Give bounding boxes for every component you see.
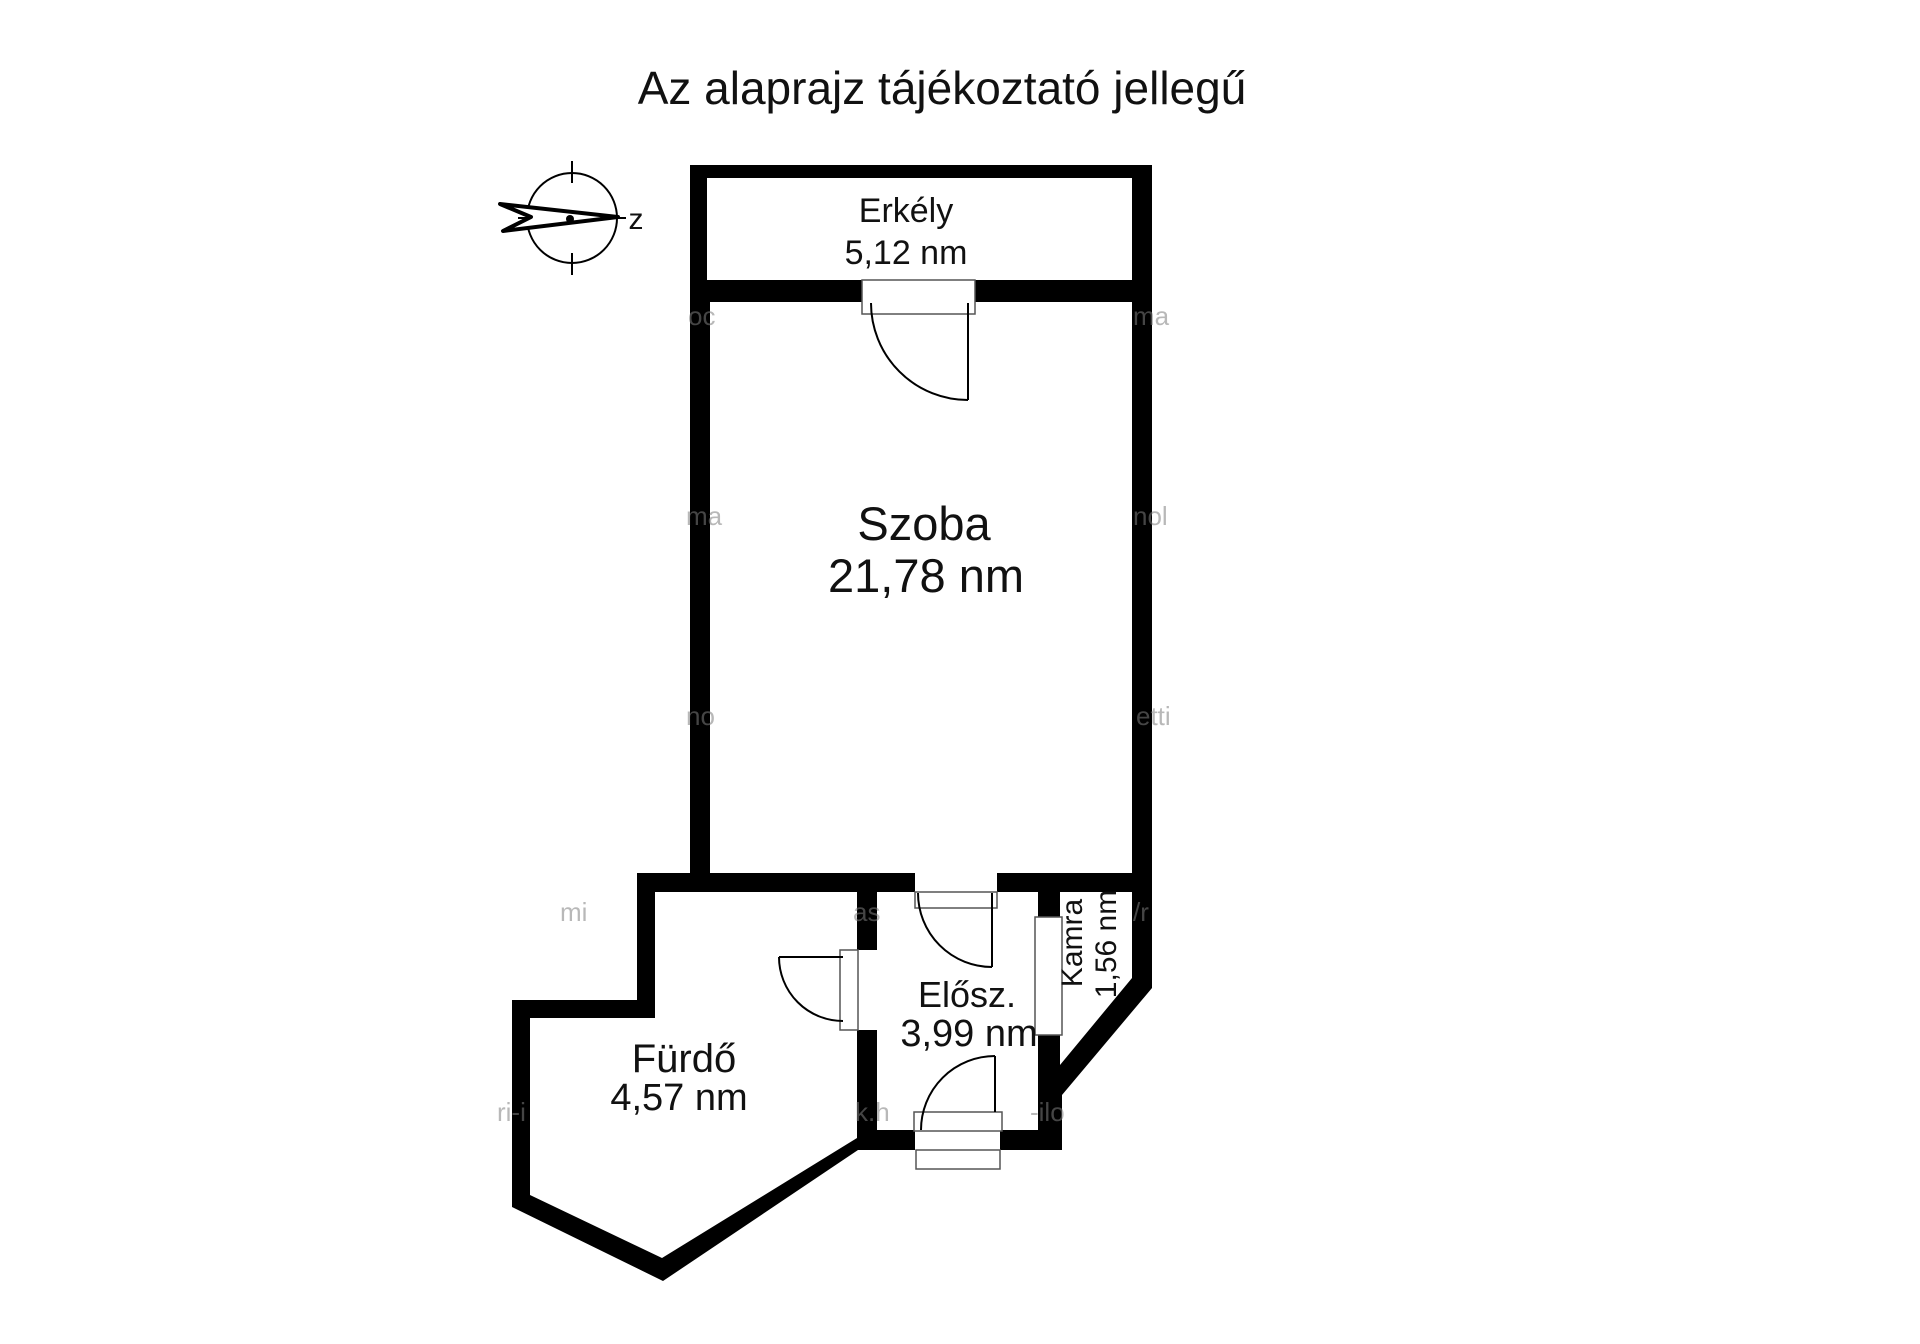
balcony-door-arc bbox=[871, 303, 968, 400]
watermark-fragment: ma bbox=[1133, 301, 1170, 331]
watermark-fragment: nol bbox=[1133, 501, 1168, 531]
compass-label: z bbox=[629, 203, 644, 236]
room-elosz-name: Elősz. bbox=[918, 974, 1016, 1015]
watermark-fragment: no bbox=[686, 701, 715, 731]
watermark-fragment: mi bbox=[560, 897, 587, 927]
room-furdo-area: 4,57 nm bbox=[610, 1077, 747, 1119]
watermark-fragment: ri-i bbox=[497, 1097, 526, 1127]
watermark-fragment: ma bbox=[686, 501, 723, 531]
balcony-door-frame bbox=[862, 280, 975, 314]
watermark-fragment: oc bbox=[688, 301, 715, 331]
room-szoba-name: Szoba bbox=[857, 497, 991, 550]
room-kamra-area: 1,56 nm bbox=[1090, 890, 1123, 998]
watermark-fragment: etti bbox=[1136, 701, 1171, 731]
room-hall-door-frame bbox=[915, 892, 997, 908]
watermark-fragment: k.h bbox=[855, 1097, 890, 1127]
bath-door-arc bbox=[779, 957, 843, 1021]
entry-door-opening bbox=[915, 1129, 1000, 1151]
watermark-fragment: as bbox=[853, 897, 880, 927]
room-erkely-area: 5,12 nm bbox=[845, 234, 968, 272]
compass-center-dot bbox=[566, 215, 574, 223]
compass-icon: z bbox=[500, 161, 644, 275]
bath-door-opening bbox=[856, 950, 878, 1030]
floorplan-page: z Az alaprajz tájékoztató jellegű Erkély… bbox=[0, 0, 1920, 1344]
room-szoba-area: 21,78 nm bbox=[828, 549, 1024, 602]
watermark-fragment: /r bbox=[1133, 897, 1149, 927]
page-title: Az alaprajz tájékoztató jellegű bbox=[638, 62, 1247, 114]
room-elosz-area: 3,99 nm bbox=[900, 1013, 1037, 1055]
floorplan-canvas: z Az alaprajz tájékoztató jellegű Erkély… bbox=[0, 0, 1920, 1344]
room-erkely-name: Erkély bbox=[859, 192, 953, 230]
bath-door-frame bbox=[840, 950, 858, 1030]
entry-door-frame-outer bbox=[916, 1150, 1000, 1169]
entry-door-frame-inner bbox=[914, 1112, 1002, 1131]
watermark-fragment: -ilo bbox=[1030, 1097, 1065, 1127]
room-furdo-name: Fürdő bbox=[632, 1037, 737, 1081]
room-kamra-name: Kamra bbox=[1056, 899, 1089, 988]
room-hall-door-opening bbox=[915, 872, 997, 893]
compass-needle bbox=[500, 204, 618, 231]
